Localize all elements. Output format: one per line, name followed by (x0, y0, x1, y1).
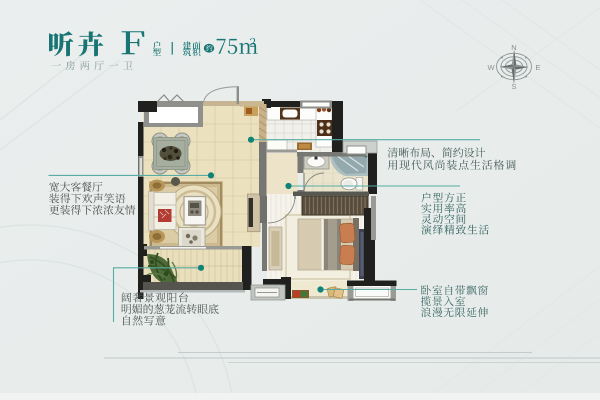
svg-text:N: N (511, 43, 516, 52)
svg-text:W: W (487, 63, 495, 72)
svg-text:S: S (511, 82, 516, 91)
svg-text:E: E (535, 63, 540, 72)
